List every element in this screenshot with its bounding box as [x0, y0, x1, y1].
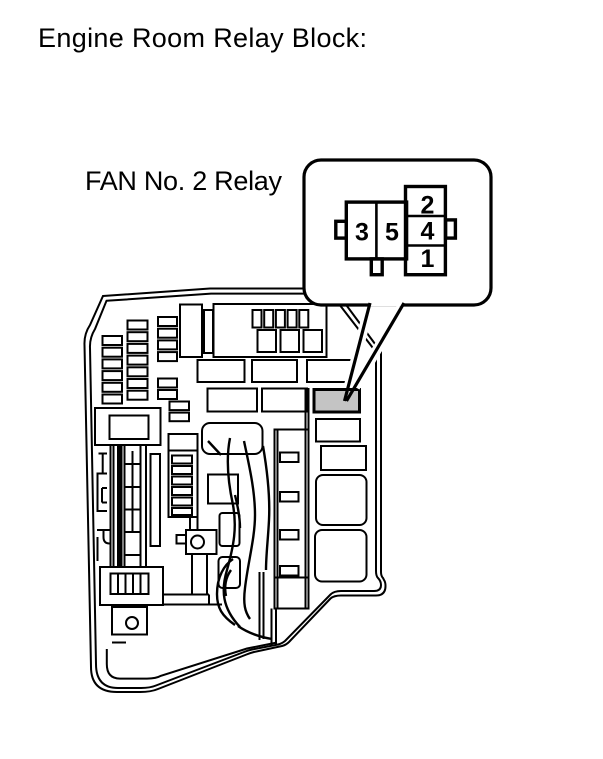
svg-text:Engine Room Relay Block:: Engine Room Relay Block: [38, 23, 367, 53]
svg-text:3: 3 [355, 219, 369, 247]
svg-text:2: 2 [421, 192, 435, 220]
svg-text:5: 5 [385, 219, 399, 247]
svg-text:1: 1 [421, 245, 435, 273]
svg-text:FAN No. 2 Relay: FAN No. 2 Relay [85, 166, 283, 196]
svg-text:4: 4 [421, 218, 435, 246]
